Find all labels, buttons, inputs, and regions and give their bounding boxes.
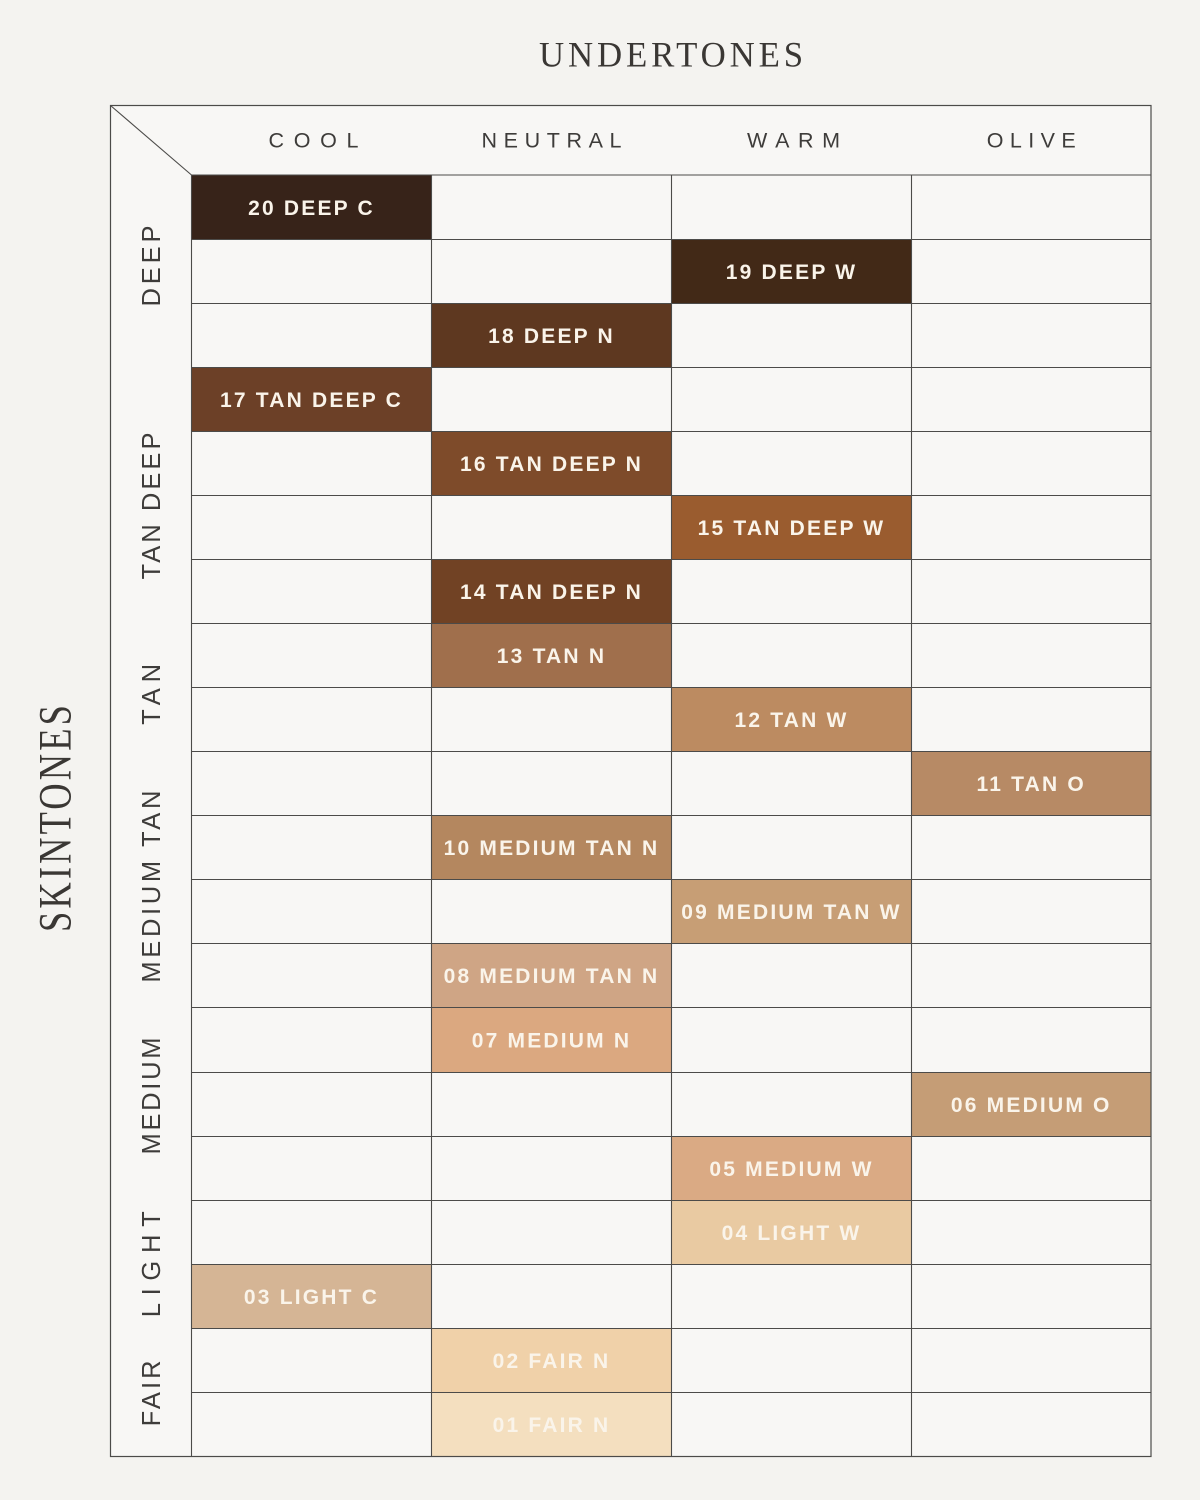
svg-text:05 MEDIUM W: 05 MEDIUM W <box>709 1158 873 1181</box>
svg-text:TAN: TAN <box>138 664 166 725</box>
svg-text:20 DEEP C: 20 DEEP C <box>248 197 375 220</box>
svg-text:17 TAN DEEP C: 17 TAN DEEP C <box>220 389 403 412</box>
svg-text:16 TAN DEEP N: 16 TAN DEEP N <box>460 453 643 476</box>
svg-text:01 FAIR N: 01 FAIR N <box>493 1414 611 1437</box>
svg-text:06 MEDIUM O: 06 MEDIUM O <box>951 1094 1112 1117</box>
svg-text:13 TAN N: 13 TAN N <box>497 645 606 668</box>
svg-text:04 LIGHT W: 04 LIGHT W <box>722 1222 862 1245</box>
svg-text:09 MEDIUM TAN W: 09 MEDIUM TAN W <box>681 901 901 924</box>
svg-text:TAN DEEP: TAN DEEP <box>138 433 166 580</box>
svg-text:19 DEEP W: 19 DEEP W <box>726 261 857 284</box>
svg-text:03 LIGHT C: 03 LIGHT C <box>244 1286 379 1309</box>
svg-text:11 TAN O: 11 TAN O <box>977 773 1086 796</box>
svg-text:MEDIUM: MEDIUM <box>138 1038 166 1155</box>
svg-text:FAIR: FAIR <box>138 1360 166 1426</box>
svg-text:15 TAN DEEP W: 15 TAN DEEP W <box>698 517 886 540</box>
svg-text:08 MEDIUM TAN N: 08 MEDIUM TAN N <box>444 965 660 988</box>
svg-text:12 TAN W: 12 TAN W <box>734 709 848 732</box>
svg-text:MEDIUM TAN: MEDIUM TAN <box>138 791 166 983</box>
svg-text:07 MEDIUM N: 07 MEDIUM N <box>472 1030 632 1053</box>
svg-text:10 MEDIUM TAN N: 10 MEDIUM TAN N <box>444 837 660 860</box>
svg-text:02 FAIR N: 02 FAIR N <box>493 1350 611 1373</box>
svg-text:UNDERTONES: UNDERTONES <box>539 34 807 74</box>
svg-text:OLIVE: OLIVE <box>987 129 1076 153</box>
svg-text:14 TAN DEEP N: 14 TAN DEEP N <box>460 581 643 604</box>
svg-text:18 DEEP N: 18 DEEP N <box>488 325 615 348</box>
svg-text:SKINTONES: SKINTONES <box>31 702 82 932</box>
